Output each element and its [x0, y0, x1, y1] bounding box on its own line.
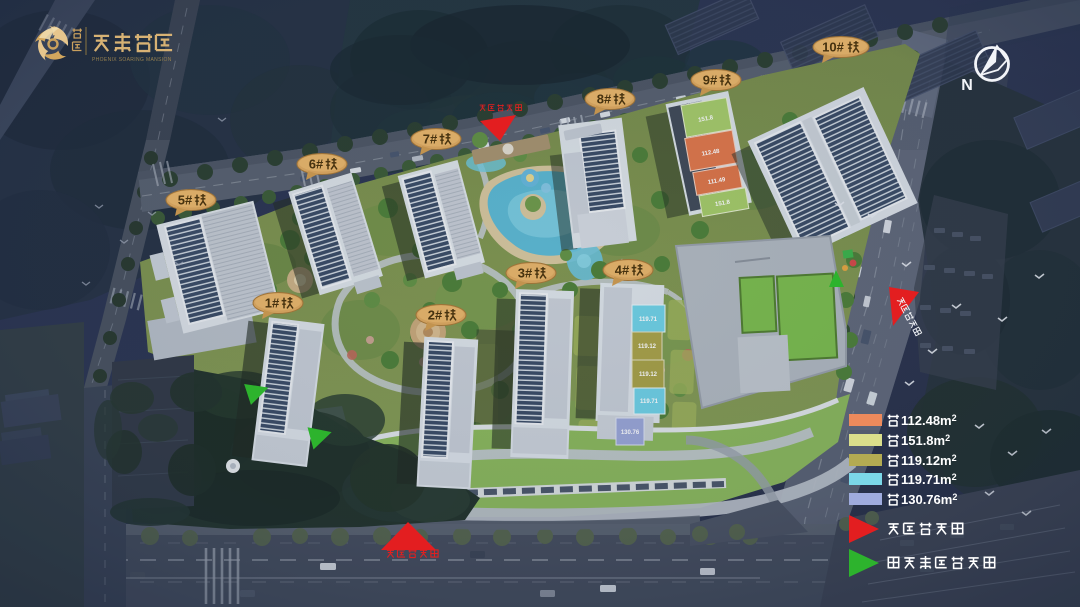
- svg-text:8#: 8#: [597, 92, 612, 107]
- svg-text:N: N: [961, 77, 973, 94]
- svg-text:10#: 10#: [822, 40, 844, 55]
- svg-text:4#: 4#: [615, 263, 630, 278]
- svg-text:1#: 1#: [265, 296, 280, 311]
- svg-text:112.48m2: 112.48m2: [901, 413, 957, 428]
- svg-text:7#: 7#: [423, 132, 438, 147]
- svg-text:2#: 2#: [428, 308, 443, 323]
- svg-text:119.12m2: 119.12m2: [901, 453, 957, 468]
- svg-text:3#: 3#: [518, 266, 533, 281]
- svg-text:130.76m2: 130.76m2: [901, 492, 957, 507]
- svg-text:5#: 5#: [178, 193, 193, 208]
- svg-text:9#: 9#: [703, 73, 718, 88]
- svg-text:PHOENIX SOARING MANSION: PHOENIX SOARING MANSION: [92, 57, 172, 63]
- svg-text:151.8m2: 151.8m2: [901, 433, 950, 448]
- svg-text:119.71m2: 119.71m2: [901, 472, 957, 487]
- svg-text:6#: 6#: [309, 157, 324, 172]
